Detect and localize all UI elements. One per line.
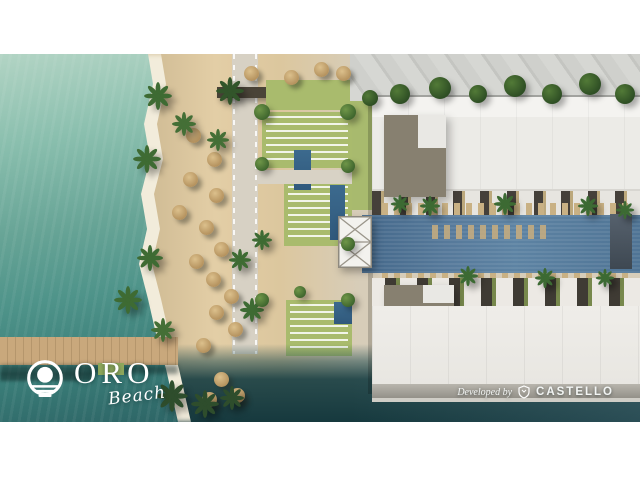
tree	[469, 85, 487, 103]
palm-tree	[534, 267, 556, 289]
beach-umbrella	[244, 66, 259, 81]
palm-tree	[219, 385, 245, 411]
pool-tanning-shelf	[432, 225, 552, 239]
hero-render: ORO Beach Developed by CASTELLO	[0, 0, 640, 480]
tree	[615, 84, 635, 104]
beach-umbrella	[207, 152, 222, 167]
beach-umbrella	[196, 338, 211, 353]
palm-tree	[251, 229, 273, 251]
developer-prefix: Developed by	[457, 387, 512, 398]
tree	[341, 237, 355, 251]
long-pool	[362, 215, 640, 273]
lawn-patch	[266, 80, 352, 110]
tree	[362, 90, 378, 106]
tree	[294, 286, 306, 298]
beach-umbrella	[189, 254, 204, 269]
palm-tree	[457, 265, 479, 287]
castello-crest-icon	[518, 385, 530, 399]
beach-umbrella	[209, 305, 224, 320]
tree	[255, 157, 269, 171]
clubhouse-roof-light	[418, 115, 446, 148]
beach-umbrella	[224, 289, 239, 304]
palm-tree	[171, 111, 197, 137]
palm-tree	[113, 285, 143, 315]
palm-tree	[206, 128, 230, 152]
tree	[255, 293, 269, 307]
tree	[254, 104, 270, 120]
palm-tree	[577, 195, 599, 217]
beach-umbrella	[228, 322, 243, 337]
pool-sign-tower	[610, 214, 632, 269]
clubhouse-block	[384, 115, 446, 197]
letterbox-bottom	[0, 422, 640, 480]
oro-beach-logo: ORO Beach	[24, 358, 166, 404]
beach-umbrella	[206, 272, 221, 287]
letterbox-top	[0, 0, 640, 54]
residence-row-south	[372, 306, 640, 386]
palm-tree	[136, 244, 164, 272]
palm-tree	[390, 194, 410, 214]
palm-tree	[143, 81, 173, 111]
beach-umbrella	[183, 172, 198, 187]
tree	[341, 293, 355, 307]
developer-credit: Developed by CASTELLO	[457, 385, 614, 399]
logo-text: ORO Beach	[74, 358, 166, 404]
beach-umbrella	[209, 188, 224, 203]
beach-umbrella	[314, 62, 329, 77]
tree	[390, 84, 410, 104]
tree	[542, 84, 562, 104]
tree	[504, 75, 526, 97]
palm-tree	[615, 200, 635, 220]
palm-tree	[228, 248, 252, 272]
beach-umbrella	[199, 220, 214, 235]
amenity-roof-light	[423, 285, 455, 303]
tree	[341, 159, 355, 173]
sun-over-waves-icon	[24, 358, 66, 400]
palm-tree	[132, 144, 162, 174]
beach-umbrella	[284, 70, 299, 85]
palm-tree	[595, 268, 615, 288]
beach-umbrella	[172, 205, 187, 220]
palm-tree	[190, 389, 220, 419]
beach-umbrella	[214, 242, 229, 257]
beach-umbrella	[336, 66, 351, 81]
palm-tree	[150, 317, 176, 343]
palm-tree	[215, 76, 245, 106]
developer-name: CASTELLO	[536, 386, 614, 398]
tree	[579, 73, 601, 95]
palm-tree	[493, 192, 517, 216]
render-scene: ORO Beach Developed by CASTELLO	[0, 54, 640, 422]
tree	[340, 104, 356, 120]
palm-tree	[419, 195, 441, 217]
tree	[429, 77, 451, 99]
